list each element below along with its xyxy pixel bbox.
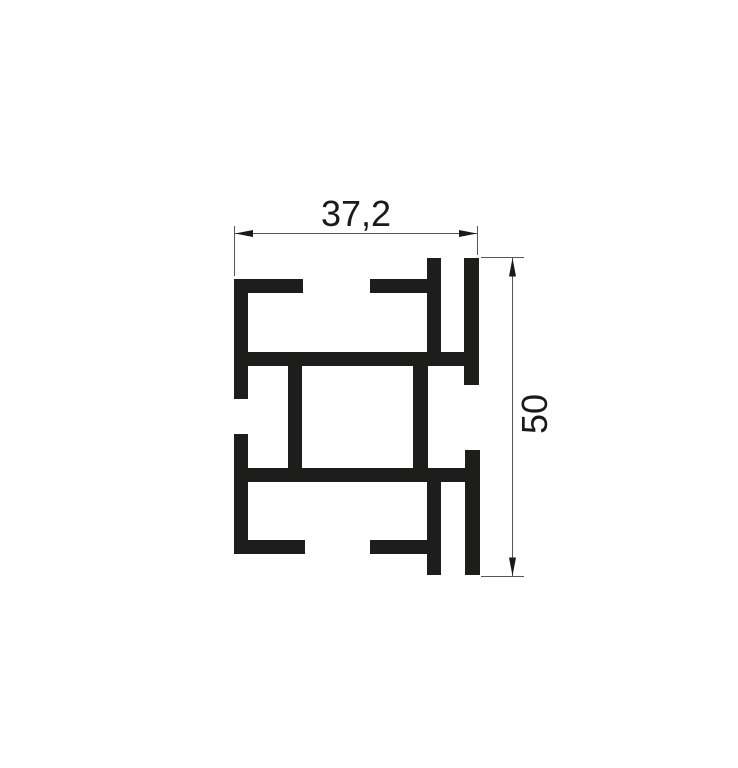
height-arrowhead-icon [509, 558, 516, 577]
profile-bar-bottom-left-flange [234, 540, 305, 554]
width-arrowhead-icon [459, 230, 477, 237]
profile-bar-box-wall-left [288, 352, 302, 482]
profile-drawing: 37,2 50 [0, 0, 738, 768]
profile-bar-inner-wall-upper [427, 258, 441, 366]
profile-bar-left-wall-upper [234, 279, 248, 399]
profile-bar-upper-web [234, 352, 479, 366]
drawing-canvas: 37,2 50 [0, 0, 738, 768]
height-arrowhead-icon [509, 258, 516, 277]
profile-shape [234, 258, 480, 575]
width-arrowhead-icon [235, 230, 253, 237]
profile-bar-lower-web [234, 468, 480, 482]
height-dimension-label: 50 [514, 394, 555, 434]
profile-bar-right-wall-lower [465, 450, 480, 575]
profile-bar-inner-wall-lower [427, 468, 441, 575]
profile-bar-left-wall-lower [234, 434, 248, 554]
width-dimension-label: 37,2 [321, 193, 391, 234]
profile-bar-box-wall-right [413, 352, 428, 482]
